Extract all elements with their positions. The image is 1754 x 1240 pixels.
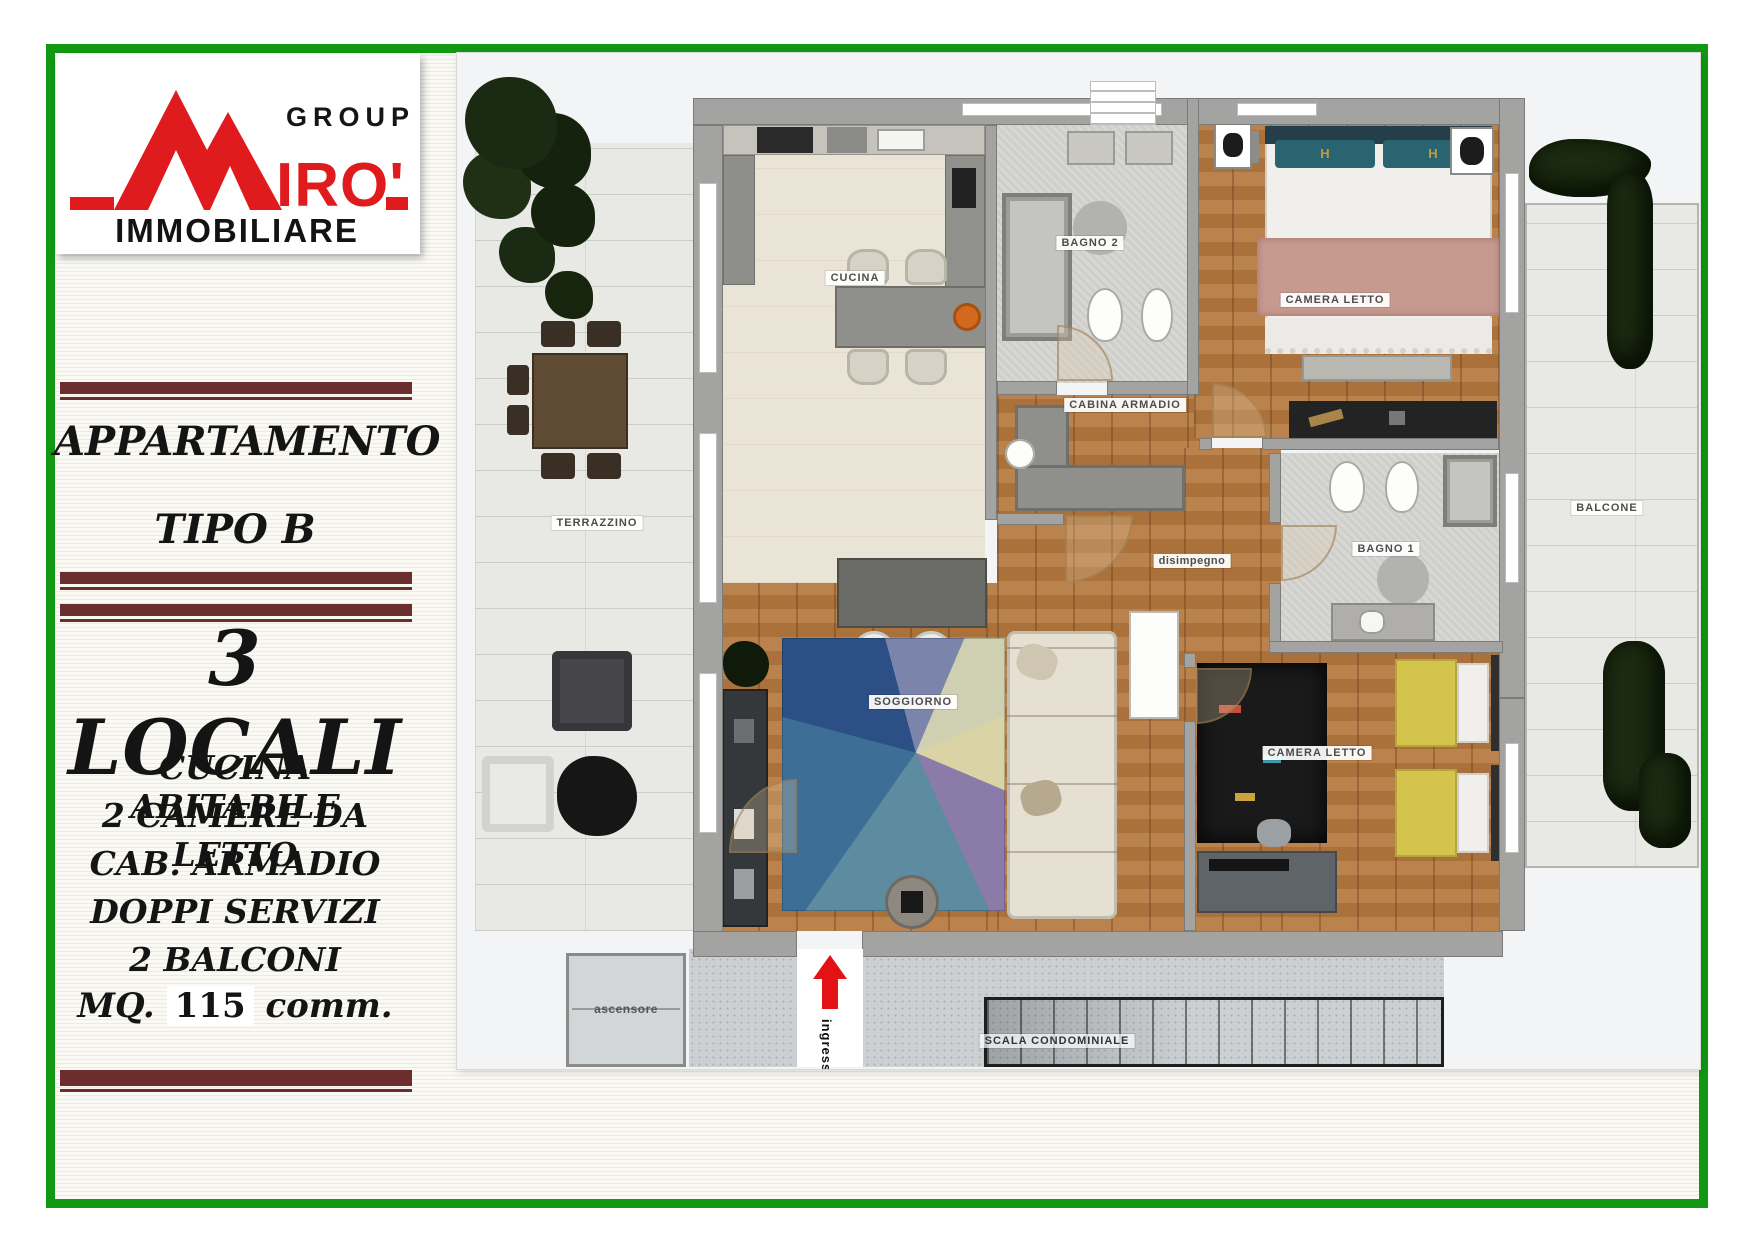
- vanity-sink: [1331, 603, 1435, 641]
- bathroom-sink: [1125, 131, 1173, 165]
- shower: [1443, 455, 1497, 527]
- window: [699, 673, 717, 833]
- wall: [1269, 583, 1281, 645]
- wall: [1262, 438, 1499, 450]
- accent-rule: [60, 572, 412, 590]
- terrace-chair: [541, 453, 575, 479]
- wall: [1269, 641, 1503, 653]
- bathroom-sink: [1067, 131, 1115, 165]
- shower: [1002, 193, 1072, 341]
- coffee-table: [885, 875, 939, 929]
- hedge-icon: [1639, 753, 1691, 848]
- logo-name-text: IRO': [276, 151, 405, 220]
- logo-sub-text: IMMOBILIARE: [115, 212, 359, 249]
- flyer-page: { "frame": { "border_color": "#129812" }…: [0, 0, 1754, 1240]
- tv-icon: [1209, 859, 1289, 871]
- room-label-camera2: CAMERA LETTO: [1263, 746, 1372, 760]
- wall: [1187, 98, 1199, 395]
- oven: [827, 127, 867, 153]
- area-suffix: comm.: [265, 986, 392, 1026]
- wall: [1184, 721, 1196, 931]
- area-value: 115: [167, 986, 254, 1026]
- wall: [862, 931, 1503, 957]
- wall: [1107, 381, 1199, 395]
- terrace-dining-table: [532, 353, 628, 449]
- bed-blanket: [1395, 659, 1457, 747]
- pillow: [1457, 663, 1489, 743]
- accent-rule: [60, 382, 412, 400]
- side-table: [1005, 439, 1035, 469]
- plant-frame-icon: [1450, 127, 1494, 175]
- accent-rule: [60, 1070, 412, 1092]
- room-label-cucina: CUCINA: [826, 271, 885, 285]
- round-rug: [557, 756, 637, 836]
- floorplan-canvas: TERRAZZINO BALCONE CUCINA BAGNO 2 H H: [456, 52, 1701, 1070]
- kitchen-sink: [877, 129, 925, 151]
- bed-headboard: [1491, 765, 1499, 861]
- stove: [757, 127, 813, 153]
- toilet: [1329, 461, 1365, 513]
- wall: [985, 125, 997, 520]
- apartment-title-line2: TIPO B: [54, 506, 416, 553]
- bidet: [1141, 288, 1173, 342]
- dining-chair: [905, 349, 947, 385]
- wardrobe-shelf: [1289, 401, 1497, 439]
- pillow: H: [1275, 140, 1375, 168]
- logo-underscore-right: [386, 197, 408, 210]
- guitar-icon: [1308, 409, 1343, 427]
- entry-label: ingresso: [819, 1019, 834, 1070]
- feature-item: CAB. ARMADIO: [54, 844, 416, 883]
- terrace-chair: [541, 321, 575, 347]
- agency-logo: GROUP IRO' IMMOBILIARE: [56, 54, 420, 254]
- terrace-armchair: [552, 651, 632, 731]
- wall: [693, 931, 797, 957]
- apartment-title-line1: APPARTAMENTO: [54, 418, 416, 465]
- terrace-chair: [587, 321, 621, 347]
- room-label-terrazzino: TERRAZZINO: [552, 516, 643, 530]
- coffee-machine: [952, 168, 976, 208]
- wardrobe: [1015, 465, 1185, 511]
- closet-door: [1129, 611, 1179, 719]
- logo-underscore-left: [70, 197, 114, 210]
- kitchen-cabinet: [723, 155, 755, 285]
- dresser-desk: [1197, 851, 1337, 913]
- bed-headboard: [1491, 655, 1499, 751]
- kitchen-island: [837, 558, 987, 628]
- bed-footer: [1265, 318, 1492, 354]
- wall: [997, 381, 1057, 395]
- room-label-bagno2: BAGNO 2: [1056, 236, 1123, 250]
- agency-logo-card: GROUP IRO' IMMOBILIARE: [56, 54, 420, 254]
- room-label-bagno1: BAGNO 1: [1352, 542, 1419, 556]
- terrace-chair: [507, 365, 529, 395]
- wall: [1199, 438, 1212, 450]
- logo-group-text: GROUP: [286, 102, 415, 132]
- room-label-ascensore: ascensore: [589, 1001, 663, 1017]
- room-label-camera1: CAMERA LETTO: [1281, 293, 1390, 307]
- pillow: [1457, 773, 1489, 853]
- window: [699, 433, 717, 603]
- living-rug: [782, 638, 1005, 911]
- room-label-balcone: BALCONE: [1571, 501, 1642, 515]
- desk-chair: [1257, 819, 1291, 847]
- terrace-chair: [507, 405, 529, 435]
- window: [699, 183, 717, 373]
- sofa: [1007, 631, 1117, 919]
- bidet: [1385, 461, 1419, 513]
- toilet: [1087, 288, 1123, 342]
- bed-blanket: [1395, 769, 1457, 857]
- balcony-door: [1505, 743, 1519, 853]
- terrace-armchair: [482, 756, 554, 832]
- single-bed: [1395, 765, 1499, 861]
- bed-bench: [1302, 355, 1452, 381]
- steps-icon: [1090, 81, 1156, 125]
- entry-arrow-icon: [813, 955, 847, 1013]
- wall: [1184, 653, 1196, 668]
- feature-item: DOPPI SERVIZI: [54, 892, 416, 931]
- room-label-cabina: CABINA ARMADIO: [1064, 398, 1186, 412]
- window: [1505, 173, 1519, 313]
- area-prefix: MQ.: [77, 986, 154, 1026]
- dining-chair: [847, 349, 889, 385]
- plant-icon: [723, 641, 769, 687]
- window: [1237, 103, 1317, 116]
- room-label-soggiorno: SOGGIORNO: [869, 695, 957, 709]
- room-label-scala: SCALA CONDOMINIALE: [980, 1034, 1135, 1048]
- area-line: MQ. 115 comm.: [54, 986, 416, 1026]
- plant-frame-icon: [1214, 123, 1252, 169]
- dining-chair: [905, 249, 947, 285]
- round-bath-rug: [1377, 553, 1429, 605]
- room-label-disimpegno: disimpegno: [1154, 554, 1231, 568]
- wall: [997, 513, 1064, 525]
- single-bed: [1395, 655, 1499, 751]
- fruit-bowl: [953, 303, 981, 331]
- terrace-chair: [587, 453, 621, 479]
- window: [1505, 473, 1519, 583]
- condo-stairs: [984, 997, 1444, 1067]
- hedge-icon: [1607, 171, 1653, 369]
- feature-item: 2 BALCONI: [54, 940, 416, 979]
- wall: [1269, 453, 1281, 523]
